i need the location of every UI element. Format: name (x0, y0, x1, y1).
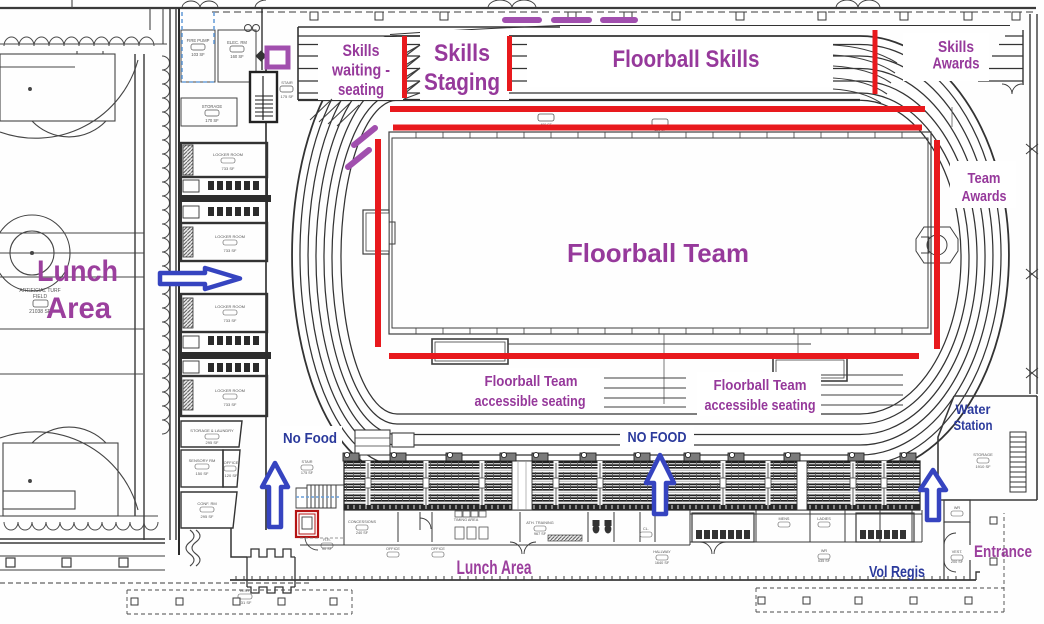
svg-text:LOCKER ROOM: LOCKER ROOM (215, 304, 245, 309)
svg-text:STORAGE & LAUNDRY: STORAGE & LAUNDRY (190, 428, 234, 433)
svg-text:295 SF: 295 SF (201, 514, 214, 519)
svg-text:TIMING AREA: TIMING AREA (454, 518, 479, 522)
svg-text:ATH. TRAINING: ATH. TRAINING (526, 521, 554, 525)
svg-text:150 SF: 150 SF (196, 471, 209, 476)
svg-text:STAIR: STAIR (281, 80, 293, 85)
svg-text:Awards: Awards (962, 188, 1007, 205)
svg-text:OFFICE: OFFICE (224, 460, 239, 465)
svg-text:accessible seating: accessible seating (705, 397, 816, 414)
svg-text:295 SF: 295 SF (206, 440, 219, 445)
svg-text:1640 SF: 1640 SF (655, 561, 670, 565)
svg-text:Floorball Team: Floorball Team (485, 373, 578, 390)
svg-text:STORAGE: STORAGE (202, 104, 223, 109)
svg-text:CONCESSIONS: CONCESSIONS (348, 520, 377, 524)
svg-text:103 SF: 103 SF (191, 52, 205, 57)
svg-text:733 SF: 733 SF (224, 402, 237, 407)
svg-text:Entrance: Entrance (974, 543, 1032, 561)
svg-text:90 SF: 90 SF (322, 547, 333, 551)
svg-text:120 SF: 120 SF (225, 473, 238, 478)
svg-text:733 SF: 733 SF (224, 318, 237, 323)
svg-text:175 SF: 175 SF (281, 94, 294, 99)
svg-text:200 SF: 200 SF (951, 560, 964, 564)
svg-text:Lunch Area: Lunch Area (457, 558, 532, 579)
svg-text:Floorball Skills: Floorball Skills (613, 46, 760, 73)
svg-text:HALLWAY: HALLWAY (653, 550, 671, 554)
svg-text:STAIR: STAIR (302, 460, 313, 464)
svg-text:LOCKER ROOM: LOCKER ROOM (215, 388, 245, 393)
svg-text:1910 SF: 1910 SF (975, 464, 991, 469)
svg-text:OFFICE: OFFICE (386, 547, 400, 551)
svg-text:Lunch: Lunch (37, 255, 118, 288)
svg-text:Station: Station (954, 417, 993, 433)
svg-text:OFFICE: OFFICE (431, 547, 445, 551)
svg-text:175 SF: 175 SF (301, 471, 314, 475)
svg-text:Skills: Skills (343, 41, 380, 60)
svg-text:LADIES: LADIES (817, 517, 831, 521)
svg-text:967 SF: 967 SF (534, 532, 547, 536)
svg-text:240 SF: 240 SF (356, 531, 369, 535)
svg-text:No Food: No Food (283, 430, 337, 447)
svg-text:LOCKER ROOM: LOCKER ROOM (213, 152, 243, 157)
svg-text:VEST.: VEST. (952, 550, 963, 554)
svg-text:ELEC. RM: ELEC. RM (227, 40, 247, 45)
svg-text:131 SF: 131 SF (239, 600, 252, 605)
svg-text:160 SF: 160 SF (230, 54, 244, 59)
svg-text:Floorball Team: Floorball Team (567, 238, 749, 268)
svg-text:Staging: Staging (424, 69, 500, 96)
svg-text:Awards: Awards (933, 56, 980, 73)
svg-text:Vol Regis: Vol Regis (869, 564, 925, 581)
svg-text:535 SF: 535 SF (818, 559, 831, 563)
svg-text:WR: WR (821, 549, 828, 553)
svg-text:MENS: MENS (779, 517, 790, 521)
svg-text:170 SF: 170 SF (205, 118, 219, 123)
svg-text:Floorball Team: Floorball Team (714, 377, 807, 394)
svg-text:733 SF: 733 SF (224, 248, 237, 253)
svg-text:NO FOOD: NO FOOD (628, 429, 687, 446)
svg-text:waiting -: waiting - (331, 61, 390, 80)
svg-text:Area: Area (46, 292, 111, 325)
svg-text:seating: seating (338, 80, 384, 99)
svg-text:STORAGE: STORAGE (973, 452, 993, 457)
svg-text:733 SF: 733 SF (222, 166, 235, 171)
svg-text:SENSORY RM: SENSORY RM (189, 458, 216, 463)
svg-text:Team: Team (968, 170, 1001, 187)
svg-text:CONF. RM: CONF. RM (197, 501, 216, 506)
svg-text:LOCKER ROOM: LOCKER ROOM (215, 234, 245, 239)
svg-text:accessible seating: accessible seating (475, 393, 586, 410)
svg-text:WR: WR (954, 506, 961, 510)
svg-text:Skills: Skills (938, 39, 974, 56)
svg-text:R.R.: R.R. (323, 538, 331, 542)
svg-text:Water: Water (956, 401, 991, 417)
svg-text:FIRE PUMP: FIRE PUMP (187, 38, 210, 43)
svg-text:VEST.: VEST. (239, 588, 250, 593)
svg-text:CL.: CL. (643, 527, 649, 531)
svg-text:Skills: Skills (434, 40, 490, 67)
